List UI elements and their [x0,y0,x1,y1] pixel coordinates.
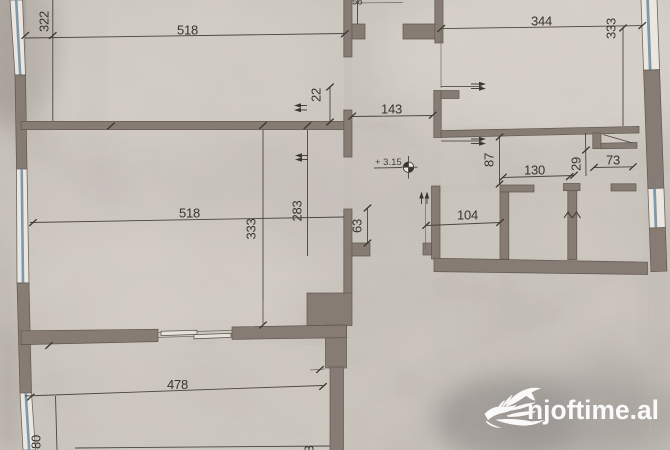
svg-text:22: 22 [308,88,323,102]
svg-text:58: 58 [352,0,363,8]
svg-text:87: 87 [481,153,496,167]
svg-text:333: 333 [243,218,258,239]
svg-text:3: 3 [301,445,316,450]
svg-text:478: 478 [167,377,188,392]
svg-text:518: 518 [179,206,200,221]
svg-text:344: 344 [531,14,552,29]
svg-text:322: 322 [36,11,51,32]
svg-text:283: 283 [289,200,304,221]
svg-text:130: 130 [524,163,545,178]
svg-text:29: 29 [568,157,583,171]
svg-text:143: 143 [381,102,402,117]
svg-text:80: 80 [28,435,43,449]
svg-text:63: 63 [349,219,364,233]
svg-text:njoftime.al: njoftime.al [527,395,659,425]
svg-text:333: 333 [603,18,618,39]
svg-text:518: 518 [177,23,198,38]
svg-text:+ 3.15: + 3.15 [375,157,402,168]
svg-text:104: 104 [457,208,478,223]
svg-text:73: 73 [606,153,620,168]
